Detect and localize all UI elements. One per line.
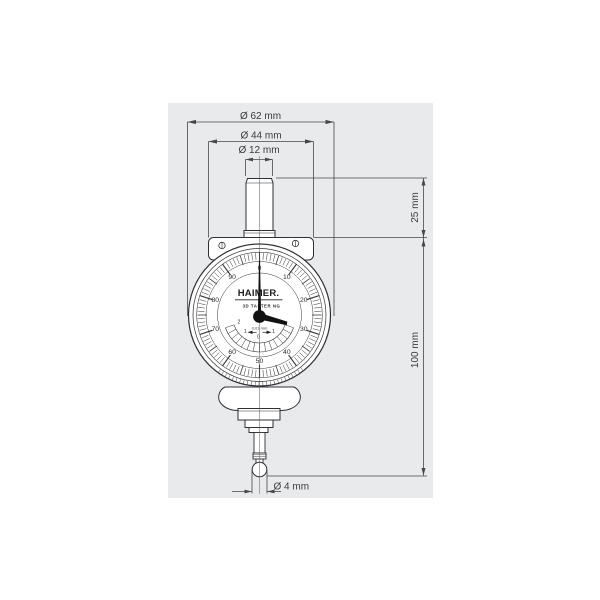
arrowhead-up-icon — [422, 178, 426, 186]
dimension-label-100: 100 mm — [410, 332, 421, 368]
arrowhead-right-icon — [305, 139, 314, 143]
arrowhead-left-icon — [246, 158, 254, 162]
sub-dial-label: 1 — [272, 329, 275, 335]
dimension-25 — [276, 178, 427, 238]
arrowhead-left-icon — [209, 139, 218, 143]
dial-scale-label: 30 — [300, 326, 308, 333]
product-image-panel: Ø 62 mm Ø 44 mm Ø 12 mm 25 mm 100 mm — [168, 103, 433, 498]
technical-drawing: Ø 62 mm Ø 44 mm Ø 12 mm 25 mm 100 mm — [168, 103, 433, 498]
dimension-label-4: Ø 4 mm — [274, 482, 310, 493]
page: { "colors": { "page_bg": "#ffffff", "pan… — [0, 0, 600, 600]
dimension-label-44: Ø 44 mm — [240, 131, 281, 142]
sub-dial-label: 1 — [244, 329, 247, 335]
arrowhead-right-icon — [326, 120, 335, 124]
dimension-label-25: 25 mm — [410, 192, 421, 223]
arrowhead-right-icon — [245, 490, 253, 494]
needle-hub — [253, 310, 266, 323]
dimension-label-62: Ø 62 mm — [240, 111, 281, 122]
arrowhead-left-icon — [188, 120, 197, 124]
sub-dial-label: 2 — [238, 319, 241, 325]
dial-scale-label: 20 — [300, 297, 308, 304]
dimension-label-12: Ø 12 mm — [238, 145, 279, 156]
dial-scale-label: 70 — [211, 326, 219, 333]
clamp-step — [249, 428, 268, 433]
clamp-block — [238, 409, 280, 421]
arrowhead-up-icon — [422, 239, 426, 247]
dimension-12 — [246, 158, 273, 176]
arrowhead-down-icon — [422, 230, 426, 238]
dial-scale-label: 60 — [228, 349, 236, 356]
arrowhead-down-icon — [422, 468, 426, 476]
dial-scale-label: 80 — [211, 297, 219, 304]
clamp-step — [245, 420, 273, 428]
dial-scale-label: 40 — [283, 349, 291, 356]
model-label: 3D TASTER NG — [243, 304, 281, 309]
graduation-label: 0,01 mm — [252, 325, 268, 330]
dial-scale-label: 90 — [228, 274, 236, 281]
dial-scale-label: 10 — [283, 274, 291, 281]
arrowhead-right-icon — [265, 158, 273, 162]
